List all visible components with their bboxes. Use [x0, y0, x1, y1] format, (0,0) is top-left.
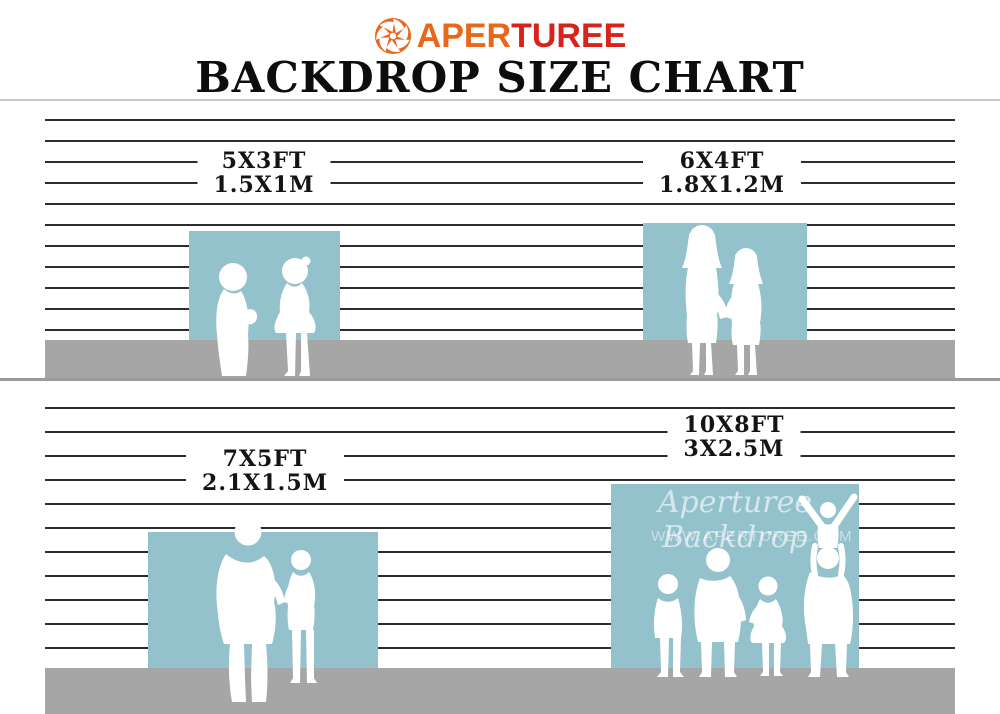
striped-wall-section-1	[45, 100, 955, 340]
size-label-feet: 10X8FT	[683, 415, 784, 436]
aperture-icon	[374, 17, 412, 55]
brand-logo: APERTUREE	[0, 17, 1000, 55]
backdrop-size-chart-page: APERTUREE BACKDROP SIZE CHART Aperturee …	[0, 0, 1000, 714]
size-label-meters: 2.1X1.5M	[202, 473, 328, 494]
two-toddlers-silhouette-icon	[203, 250, 328, 380]
logo-text-suffix: TUREE	[511, 17, 626, 55]
size-label-feet: 5X3FT	[213, 151, 314, 172]
size-label-5x3: 5X3FT 1.5X1M	[197, 148, 330, 199]
father-child-silhouette-icon	[198, 518, 333, 708]
size-label-10x8: 10X8FT 3X2.5M	[667, 412, 800, 463]
size-label-feet: 6X4FT	[659, 151, 785, 172]
floor-edge-line	[0, 378, 1000, 381]
logo-text-prefix: APER	[417, 17, 511, 55]
mother-daughter-silhouette-icon	[670, 223, 780, 381]
page-title: BACKDROP SIZE CHART	[0, 56, 1000, 100]
size-label-meters: 1.8X1.2M	[659, 175, 785, 196]
size-label-meters: 3X2.5M	[683, 439, 784, 460]
family-silhouette-icon	[638, 482, 863, 687]
size-label-6x4: 6X4FT 1.8X1.2M	[643, 148, 801, 199]
floor-band-1	[45, 340, 955, 378]
size-label-meters: 1.5X1M	[213, 175, 314, 196]
size-label-feet: 7X5FT	[202, 449, 328, 470]
logo-text: APERTUREE	[417, 19, 627, 53]
size-label-7x5: 7X5FT 2.1X1.5M	[186, 446, 344, 497]
